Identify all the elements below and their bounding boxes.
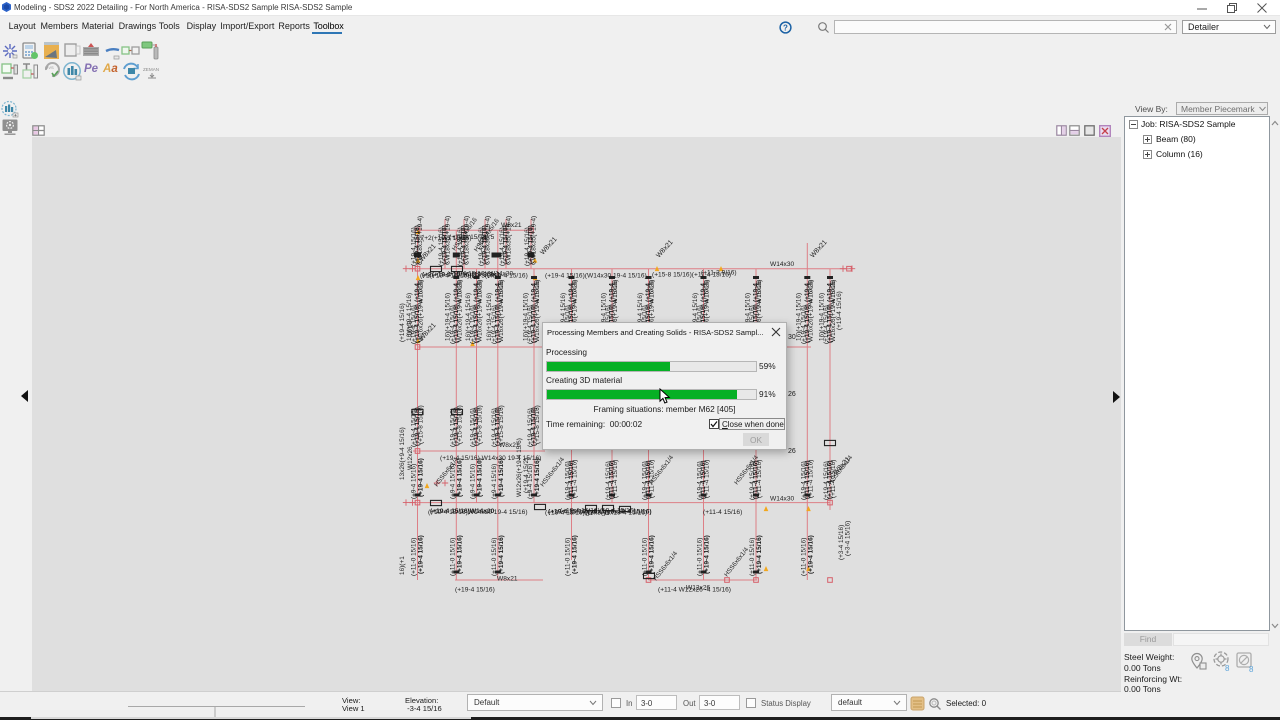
svg-text:W14x30: W14x30 xyxy=(770,261,795,268)
svg-text:(+19-4 15/16): (+19-4 15/16) xyxy=(572,535,579,574)
svg-text:8: 8 xyxy=(1249,665,1254,673)
svg-text:W8x21: W8x21 xyxy=(497,576,518,583)
svg-text:HSS6x6x1/4: HSS6x6x1/4 xyxy=(539,456,566,488)
svg-text:16)(+1: 16)(+1 xyxy=(399,556,406,575)
svg-text:W12x26(+19-4 15/6): W12x26(+19-4 15/6) xyxy=(516,438,523,497)
svg-text:(+11-4 15/16): (+11-4 15/16) xyxy=(609,461,616,499)
svg-text:W8x21: W8x21 xyxy=(655,239,675,260)
svg-text:16)(+19-4 15/16): 16)(+19-4 15/16) xyxy=(796,293,803,341)
svg-text:13x26(+9-4 15/16): 13x26(+9-4 15/16) xyxy=(399,427,406,480)
svg-text:(+19-4 15/16): (+19-4 15/16) xyxy=(399,303,406,342)
svg-text:W16x26: W16x26 xyxy=(418,280,425,304)
svg-text:(+19-4 15/16): (+19-4 15/16) xyxy=(455,587,495,594)
svg-text:W16x26: W16x26 xyxy=(534,280,541,304)
svg-text:W16x26: W16x26 xyxy=(808,280,815,304)
svg-text:(+19-4 15/16): (+19-4 15/16) xyxy=(414,407,421,446)
svg-text:W8x21: W8x21 xyxy=(539,236,559,257)
svg-text:MVS: MVS xyxy=(45,65,54,70)
svg-text:26: 26 xyxy=(788,391,796,398)
svg-text:HSS6x6x1/4: HSS6x6x1/4 xyxy=(652,550,679,582)
svg-text:16)(9: 16)(9 xyxy=(407,321,414,336)
svg-text:16)(+19-4 15/16): 16)(+19-4 15/16) xyxy=(445,293,452,341)
svg-text:W16x26: W16x26 xyxy=(704,280,711,304)
svg-text:W16x26: W16x26 xyxy=(612,280,619,304)
svg-text:(+19-4 15/16)(W14x30 19-4 15/1: (+19-4 15/16)(W14x30 19-4 15/16) xyxy=(545,273,647,280)
svg-text:(+19-4 15/16): (+19-4 15/16) xyxy=(756,535,763,574)
svg-text:(+11-4 15/16): (+11-4 15/16) xyxy=(568,461,575,499)
svg-text:(+19-4 15/16): (+19-4 15/16) xyxy=(457,458,464,497)
svg-text:(+19-4 15/16): (+19-4 15/16) xyxy=(418,458,425,497)
svg-text:(+11-0 15/16): (+11-0 15/16) xyxy=(749,538,756,576)
svg-text:(+11-0 15/16): (+11-0 15/16) xyxy=(565,538,572,576)
svg-text:W14x30: W14x30 xyxy=(770,496,795,503)
svg-text:(+19-4 15/16): (+19-4 15/16) xyxy=(418,535,425,574)
svg-text:(+19-4 15/16): (+19-4 15/16) xyxy=(441,225,448,264)
svg-text:HSS6x6x1/4: HSS6x6x1/4 xyxy=(723,546,750,578)
svg-text:(+19-4 15/16): (+19-4 15/16) xyxy=(453,407,460,446)
svg-text:(+19-4 15/16)(19-4 15/16): (+19-4 15/16)(19-4 15/16) xyxy=(560,508,636,515)
svg-text:(+11-4 15/16): (+11-4 15/16) xyxy=(700,461,707,499)
svg-text:(+19-4 15/16): (+19-4 15/16) xyxy=(453,304,460,343)
svg-text:W16x26: W16x26 xyxy=(457,280,464,304)
svg-text:(+9-4 15/16): (+9-4 15/16) xyxy=(491,464,498,499)
svg-text:16)(+19-4 15/16): 16)(+19-4 15/16) xyxy=(818,293,825,341)
svg-text:(+19-4 15/16): (+19-4 15/16) xyxy=(473,407,480,446)
svg-text:(+19-4 15/16): (+19-4 15/16) xyxy=(649,535,656,574)
svg-text:(+11-0 15/16): (+11-0 15/16) xyxy=(800,538,807,576)
svg-text:(+19-4 15/16)W14x30: (+19-4 15/16)W14x30 xyxy=(430,508,495,515)
svg-text:(+19-4 15/16): (+19-4 15/16) xyxy=(836,291,843,330)
svg-text:(+11-0 15/16): (+11-0 15/16) xyxy=(411,538,418,576)
svg-text:(+19-4 15/16): (+19-4 15/16) xyxy=(531,304,538,343)
svg-text:(+19-4 15/16): (+19-4 15/16) xyxy=(498,458,505,497)
svg-text:W16x26: W16x26 xyxy=(572,280,579,304)
svg-text:(+3-4 15/16): (+3-4 15/16) xyxy=(845,521,852,556)
svg-text:(+11-0 15/16): (+11-0 15/16) xyxy=(697,538,704,576)
svg-text:(+19-4 15/16): (+19-4 15/16) xyxy=(827,304,834,343)
svg-text:(+11-0 15/16): (+11-0 15/16) xyxy=(449,538,456,576)
svg-text:(+11-0 15/16): (+11-0 15/16) xyxy=(642,538,649,576)
svg-text:W12x26: W12x26 xyxy=(686,585,711,592)
svg-text:(+19-4 15/16): (+19-4 15/16) xyxy=(804,304,811,343)
svg-text:(+19-4 15/16): (+19-4 15/16) xyxy=(473,304,480,343)
svg-text:(+11-4 15/16): (+11-4 15/16) xyxy=(804,461,811,499)
svg-text:(+11-3 9/16): (+11-3 9/16) xyxy=(701,270,737,277)
svg-text:(+11-4 15/16): (+11-4 15/16) xyxy=(703,509,742,516)
svg-text:16)(+19-4 15/16): 16)(+19-4 15/16) xyxy=(486,293,493,341)
svg-text:(+19-4 15/16): (+19-4 15/16) xyxy=(457,535,464,574)
svg-text:8: 8 xyxy=(1225,664,1230,672)
svg-text:(+9-4 15/16): (+9-4 15/16) xyxy=(470,464,477,499)
svg-text:30: 30 xyxy=(788,334,796,341)
svg-text:(+19-4 15/2): (+19-4 15/2) xyxy=(523,458,530,493)
svg-text:W16x26: W16x26 xyxy=(756,280,763,304)
svg-text:26: 26 xyxy=(788,448,796,455)
svg-text:(+11-0 15/16): (+11-0 15/16) xyxy=(491,538,498,576)
svg-text:?: ? xyxy=(783,23,788,32)
svg-text:W16x26: W16x26 xyxy=(477,280,484,304)
svg-text:(+19-4 15/16): (+19-4 15/16) xyxy=(704,535,711,574)
svg-text:16)(+19-4 15/16): 16)(+19-4 15/16) xyxy=(465,293,472,341)
svg-text:(+19-4 15/16): (+19-4 15/16) xyxy=(502,225,509,264)
svg-text:W16x26: W16x26 xyxy=(649,280,656,304)
svg-text:W8x21: W8x21 xyxy=(501,222,522,229)
svg-text:(+19-4 15/16): (+19-4 15/16) xyxy=(808,535,815,574)
svg-text:(+19-4 15/16): (+19-4 15/16) xyxy=(527,225,534,264)
svg-text:(+19-4 15/16): (+19-4 15/16) xyxy=(477,458,484,497)
svg-text:16)(+19-4 15/16): 16)(+19-4 15/16) xyxy=(522,293,529,341)
svg-text:(+19-4 15/16): (+19-4 15/16) xyxy=(531,407,538,446)
svg-text:W16x26: W16x26 xyxy=(498,280,505,304)
svg-text:(+19-4 15/16): (+19-4 15/16) xyxy=(494,304,501,343)
svg-text:(+19-4 15/16): (+19-4 15/16) xyxy=(494,407,501,446)
svg-text:(+19-4 15/16): (+19-4 15/16) xyxy=(534,458,541,497)
svg-text:(+9-4 15/16): (+9-4 15/16) xyxy=(411,464,418,499)
svg-text:W8x21: W8x21 xyxy=(809,239,829,260)
svg-text:ZEMAN: ZEMAN xyxy=(143,67,159,72)
svg-text:(+19-4 15/16)(W14x30: (+19-4 15/16)(W14x30 xyxy=(447,271,513,278)
svg-text:(+19-4 15/16): (+19-4 15/16) xyxy=(498,535,505,574)
